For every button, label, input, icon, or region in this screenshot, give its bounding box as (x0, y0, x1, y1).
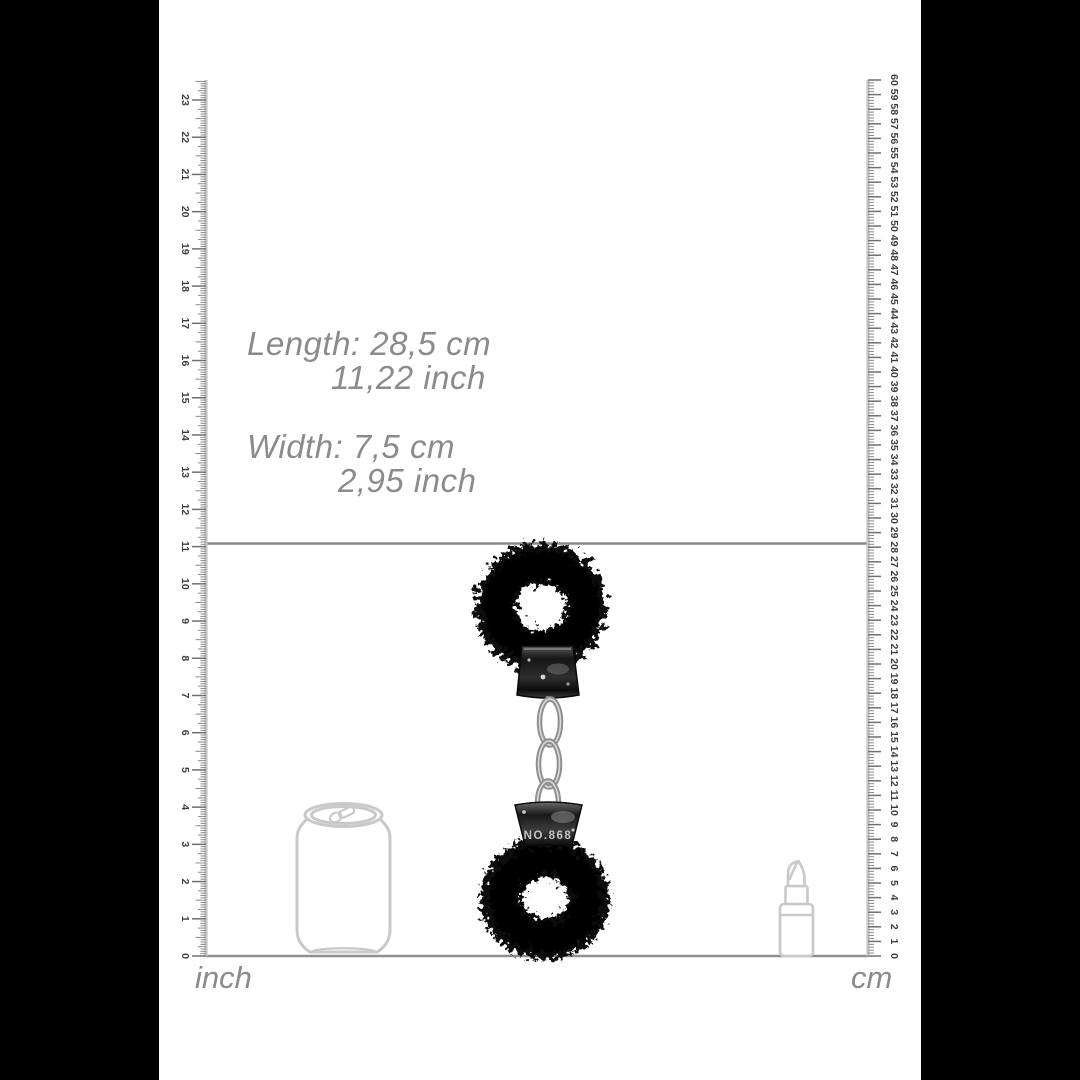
ruler-tick-label: 6 (888, 865, 900, 871)
ruler-tick-label: 56 (888, 133, 900, 145)
cm-ruler: 0123456789101112131415161718192021222324… (866, 74, 900, 959)
ruler-tick-label: 57 (888, 118, 900, 130)
ruler-tick-label: 44 (888, 308, 900, 320)
ruler-tick-label: 14 (179, 429, 191, 441)
ruler-tick-label: 15 (179, 392, 191, 404)
ruler-tick-label: 24 (888, 600, 900, 612)
ruler-tick-label: 50 (888, 220, 900, 232)
inch-ruler: 01234567891011121314151617181920212223 (179, 80, 207, 959)
cm-unit-label: cm (851, 960, 892, 996)
ruler-tick-label: 16 (888, 717, 900, 729)
ruler-tick-label: 13 (179, 466, 191, 478)
ruler-tick-label: 30 (888, 512, 900, 524)
ruler-tick-label: 26 (888, 571, 900, 583)
ruler-tick-label: 0 (179, 953, 191, 959)
ruler-tick-label: 21 (179, 169, 191, 181)
ruler-tick-label: 18 (179, 280, 191, 292)
ruler-tick-label: 55 (888, 147, 900, 159)
ruler-tick-label: 15 (888, 731, 900, 743)
ruler-tick-label: 3 (888, 909, 900, 915)
ruler-tick-label: 27 (888, 556, 900, 568)
ruler-tick-label: 1 (888, 938, 900, 944)
ruler-tick-label: 49 (888, 235, 900, 247)
ruler-tick-label: 31 (888, 498, 900, 510)
ruler-tick-label: 13 (888, 760, 900, 772)
ruler-tick-label: 33 (888, 468, 900, 480)
dimension-scene: 01234567891011121314151617181920212223 0… (159, 0, 921, 1080)
ruler-tick-label: 19 (179, 243, 191, 255)
ruler-tick-label: 19 (888, 673, 900, 685)
ruler-tick-label: 46 (888, 279, 900, 291)
ruler-tick-label: 53 (888, 176, 900, 188)
ruler-tick-label: 22 (888, 629, 900, 641)
ruler-tick-label: 11 (888, 790, 900, 801)
ruler-tick-label: 12 (888, 775, 900, 787)
ruler-tick-label: 7 (179, 693, 191, 699)
ruler-tick-label: 5 (179, 767, 191, 773)
ruler-tick-label: 51 (888, 206, 900, 218)
ruler-tick-label: 14 (888, 746, 900, 758)
ruler-tick-label: 20 (179, 206, 191, 218)
ruler-tick-label: 9 (888, 822, 900, 828)
ruler-tick-label: 2 (179, 879, 191, 885)
ruler-tick-label: 47 (888, 264, 900, 276)
ruler-tick-label: 7 (888, 851, 900, 857)
ruler-tick-label: 23 (888, 614, 900, 626)
bottom-cuff-metal: NO.868 (515, 802, 582, 845)
ruler-tick-label: 9 (179, 618, 191, 624)
ruler-tick-label: 17 (888, 702, 900, 714)
ruler-tick-label: 48 (888, 249, 900, 261)
ruler-tick-label: 58 (888, 103, 900, 115)
ruler-tick-label: 34 (888, 454, 900, 466)
ruler-tick-label: 28 (888, 541, 900, 553)
ruler-tick-label: 18 (888, 687, 900, 699)
ruler-tick-label: 11 (179, 541, 191, 552)
bottom-cuff-fur-inner (504, 860, 588, 938)
ruler-tick-label: 6 (179, 730, 191, 736)
top-cuff-fur-inner (498, 565, 584, 647)
inch-unit-label: inch (195, 960, 252, 996)
ruler-tick-label: 1 (179, 916, 191, 922)
ruler-tick-label: 16 (179, 355, 191, 367)
white-panel: 01234567891011121314151617181920212223 0… (159, 0, 921, 1080)
ruler-tick-label: 59 (888, 89, 900, 101)
ruler-tick-label: 3 (179, 841, 191, 847)
cuff-stamp-text: NO.868 (524, 830, 573, 842)
ruler-tick-label: 41 (888, 352, 900, 364)
ruler-tick-label: 23 (179, 94, 191, 106)
ruler-tick-label: 37 (888, 410, 900, 422)
ruler-tick-label: 25 (888, 585, 900, 597)
ruler-tick-label: 10 (888, 804, 900, 816)
top-cuff-metal (517, 646, 579, 698)
ruler-tick-label: 17 (179, 317, 191, 329)
ruler-tick-label: 4 (888, 895, 900, 901)
ruler-tick-label: 20 (888, 658, 900, 670)
ruler-tick-label: 12 (179, 504, 191, 516)
ruler-tick-label: 42 (888, 337, 900, 349)
ruler-tick-label: 60 (888, 74, 900, 86)
ruler-tick-label: 43 (888, 322, 900, 334)
ruler-tick-label: 0 (888, 953, 900, 959)
ruler-tick-label: 35 (888, 439, 900, 451)
ruler-tick-label: 36 (888, 425, 900, 437)
width-cm-text: Width: 7,5 cm (247, 428, 455, 466)
ruler-tick-label: 21 (888, 644, 900, 656)
soda-can-outline (297, 804, 390, 953)
ruler-tick-label: 45 (888, 293, 900, 305)
ruler-tick-label: 38 (888, 395, 900, 407)
ruler-tick-label: 4 (179, 804, 191, 810)
ruler-tick-label: 22 (179, 131, 191, 143)
length-cm-text: Length: 28,5 cm (247, 325, 491, 363)
ruler-tick-label: 32 (888, 483, 900, 495)
length-inch-text: 11,22 inch (331, 359, 486, 397)
ruler-tick-label: 2 (888, 924, 900, 930)
ruler-tick-label: 8 (179, 655, 191, 661)
ruler-tick-label: 8 (888, 836, 900, 842)
ruler-tick-label: 39 (888, 381, 900, 393)
ruler-tick-label: 52 (888, 191, 900, 203)
furry-handcuffs: NO.868 (496, 563, 589, 939)
product-dimension-image: 01234567891011121314151617181920212223 0… (0, 0, 1080, 1080)
ruler-tick-label: 5 (888, 880, 900, 886)
lipstick-outline (780, 861, 813, 956)
width-inch-text: 2,95 inch (338, 462, 476, 500)
ruler-tick-label: 40 (888, 366, 900, 378)
ruler-tick-label: 29 (888, 527, 900, 539)
ruler-tick-label: 54 (888, 162, 900, 174)
ruler-tick-label: 10 (179, 578, 191, 590)
